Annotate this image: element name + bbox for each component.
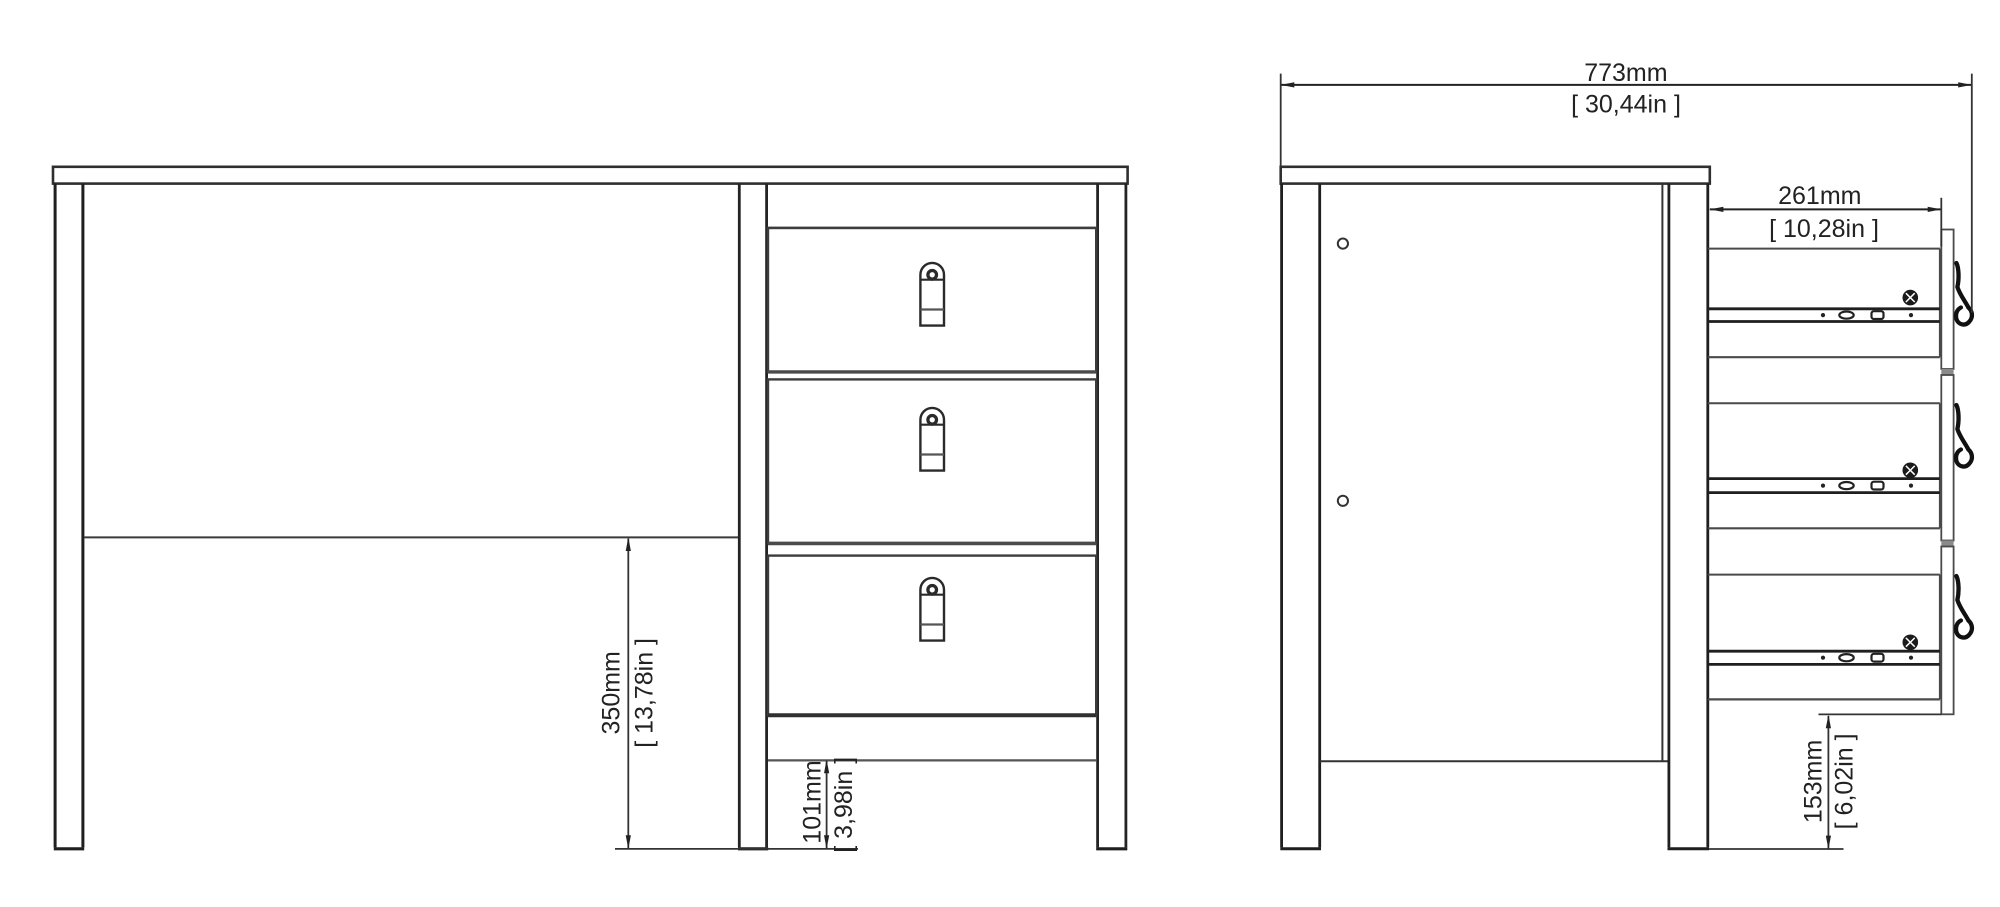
svg-text:[ 6,02in ]: [ 6,02in ] (1830, 733, 1858, 829)
svg-text:261mm: 261mm (1778, 182, 1861, 210)
svg-text:[ 10,28in ]: [ 10,28in ] (1769, 215, 1879, 243)
svg-text:[ 13,78in ]: [ 13,78in ] (630, 638, 658, 748)
svg-text:153mm: 153mm (1799, 740, 1827, 823)
svg-text:[ 30,44in ]: [ 30,44in ] (1571, 91, 1681, 119)
svg-text:350mm: 350mm (598, 651, 626, 734)
svg-text:773mm: 773mm (1584, 59, 1667, 87)
svg-text:101mm: 101mm (798, 760, 826, 843)
svg-text:[ 3,98in ]: [ 3,98in ] (830, 757, 858, 853)
